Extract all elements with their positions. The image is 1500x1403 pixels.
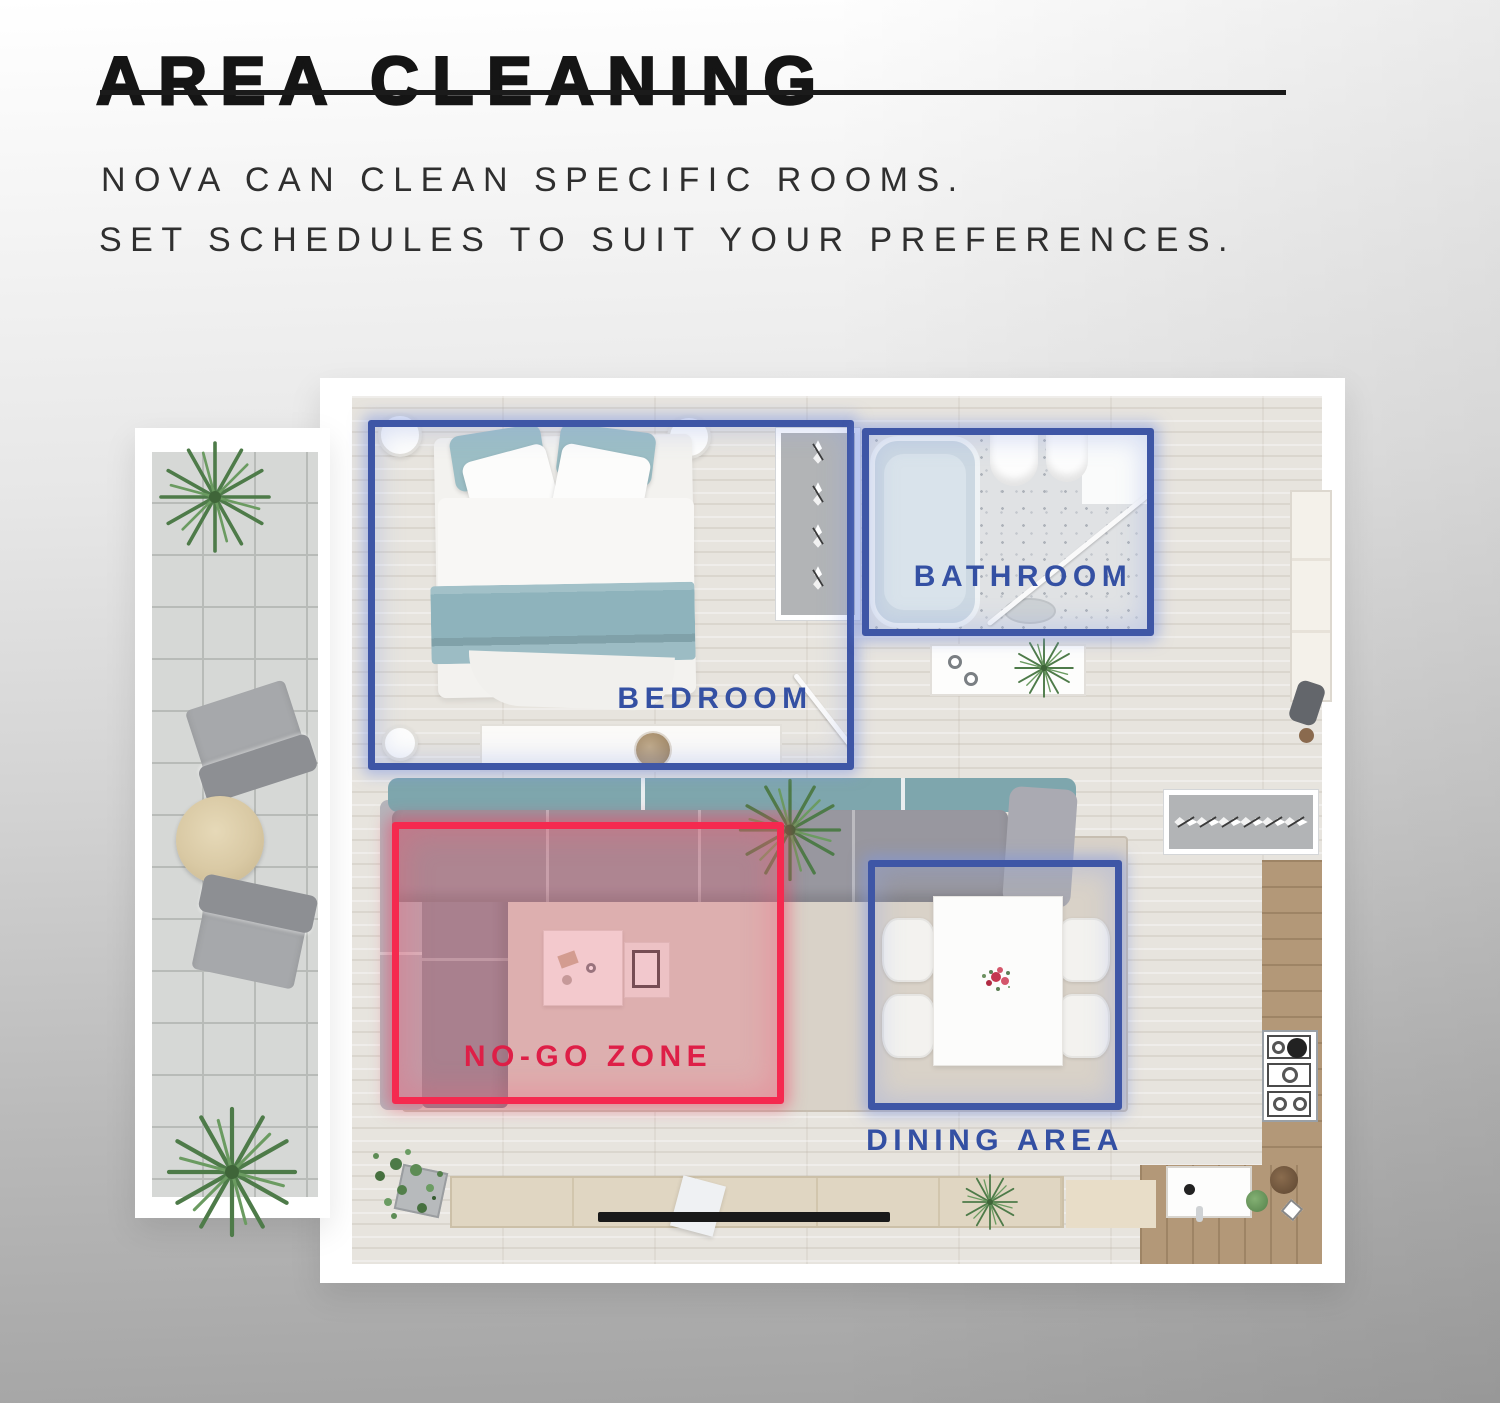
zone-label-bedroom: BEDROOM [617, 682, 812, 716]
zone-box-dining [868, 860, 1122, 1110]
vanity-plant-icon [1012, 636, 1076, 700]
faucet [1196, 1206, 1203, 1222]
stove-cooktop [1262, 1030, 1318, 1122]
radiator-horizontal [1164, 790, 1318, 854]
zone-box-bathroom [862, 428, 1154, 636]
kitchen-sink [1166, 1166, 1252, 1218]
tv-screen [598, 1212, 890, 1222]
doormat-beige [1066, 1180, 1156, 1228]
shoes-on-floor [1299, 728, 1314, 743]
zone-label-dining-area: DINING AREA [866, 1124, 1124, 1158]
sofa-top-back-teal [388, 778, 1076, 812]
sink-drain-2 [964, 672, 978, 686]
hall-closet [1290, 490, 1332, 702]
sink-drain-1 [948, 655, 962, 669]
balcony-plant-bottom-icon [162, 1102, 302, 1242]
balcony-round-table [176, 796, 264, 884]
floor-plan: BEDROOM BATHROOM DINING AREA NO-GO ZONE [0, 0, 1500, 1403]
floor-plant-leaves [390, 1158, 402, 1170]
balcony-plant-top-icon [155, 437, 275, 557]
marketing-graphic: AREA CLEANING NOVA CAN CLEAN SPECIFIC RO… [0, 0, 1500, 1403]
zone-label-no-go-zone: NO-GO ZONE [464, 1040, 712, 1074]
zone-box-bedroom [368, 420, 854, 770]
bench-plant-icon [960, 1172, 1020, 1232]
floor-plant-pot [394, 1164, 449, 1219]
plant-pot-brown [1270, 1166, 1298, 1194]
plant-pot-green [1246, 1190, 1268, 1212]
zone-label-bathroom: BATHROOM [914, 560, 1132, 594]
